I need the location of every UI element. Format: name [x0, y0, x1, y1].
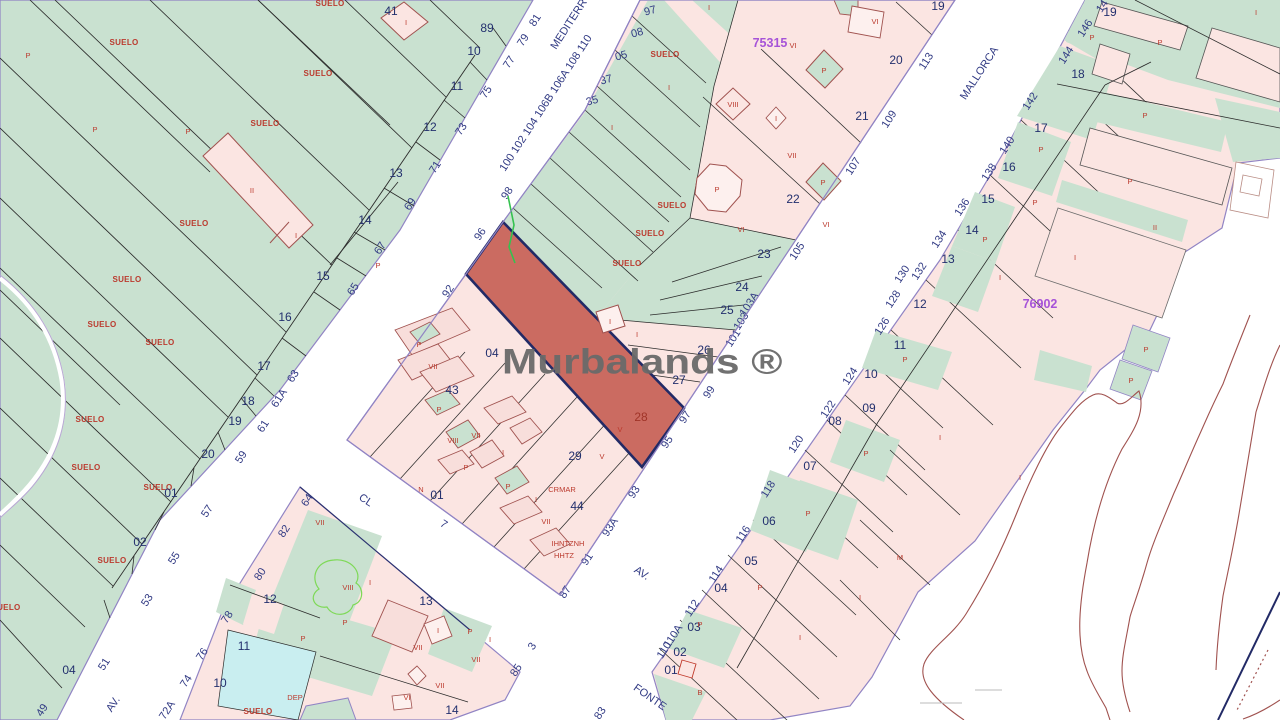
svg-text:I: I: [295, 231, 297, 240]
svg-text:05: 05: [744, 554, 758, 568]
svg-text:19: 19: [228, 414, 242, 428]
svg-text:75315: 75315: [753, 36, 788, 50]
svg-text:P: P: [1143, 345, 1148, 354]
svg-text:01: 01: [664, 663, 678, 677]
svg-text:17: 17: [257, 359, 271, 373]
svg-text:12: 12: [913, 297, 927, 311]
svg-text:CRMAR: CRMAR: [548, 485, 576, 494]
svg-text:24: 24: [735, 280, 749, 294]
svg-text:VI: VI: [789, 41, 796, 50]
svg-text:P: P: [1157, 38, 1162, 47]
svg-text:01: 01: [430, 488, 444, 502]
svg-text:VII: VII: [787, 151, 796, 160]
svg-text:I: I: [939, 433, 941, 442]
svg-text:16: 16: [1002, 160, 1016, 174]
svg-text:17: 17: [1034, 121, 1048, 135]
svg-text:SUELO: SUELO: [87, 320, 116, 329]
svg-text:I: I: [668, 83, 670, 92]
svg-text:P: P: [467, 627, 472, 636]
svg-text:18: 18: [1071, 67, 1085, 81]
svg-text:VI: VI: [822, 220, 829, 229]
svg-text:04: 04: [485, 346, 499, 360]
svg-text:19: 19: [931, 0, 945, 13]
svg-text:V: V: [617, 425, 622, 434]
svg-text:P: P: [1089, 33, 1094, 42]
svg-text:P: P: [902, 355, 907, 364]
svg-text:I: I: [708, 3, 710, 12]
svg-text:I: I: [609, 317, 611, 326]
svg-text:15: 15: [316, 269, 330, 283]
svg-text:11: 11: [451, 79, 464, 93]
svg-text:P: P: [1032, 198, 1037, 207]
svg-text:20: 20: [201, 447, 215, 461]
svg-text:VII: VII: [315, 518, 324, 527]
svg-text:25: 25: [720, 303, 734, 317]
svg-text:18: 18: [241, 394, 255, 408]
svg-text:06: 06: [762, 514, 776, 528]
svg-text:VII: VII: [428, 362, 437, 371]
svg-text:SUELO: SUELO: [303, 69, 332, 78]
svg-text:SUELO: SUELO: [650, 50, 679, 59]
svg-text:16: 16: [278, 310, 292, 324]
svg-text:P: P: [982, 235, 987, 244]
svg-text:12: 12: [423, 120, 437, 134]
svg-text:I: I: [1074, 253, 1076, 262]
svg-text:SUELO: SUELO: [612, 259, 641, 268]
svg-text:P: P: [25, 51, 30, 60]
svg-text:14: 14: [965, 223, 979, 237]
svg-text:P: P: [805, 509, 810, 518]
svg-text:I: I: [369, 578, 371, 587]
svg-text:VIII: VIII: [727, 100, 738, 109]
svg-text:28: 28: [634, 410, 648, 424]
svg-text:12: 12: [263, 592, 277, 606]
svg-text:SUELO: SUELO: [97, 556, 126, 565]
svg-text:SUELO: SUELO: [75, 415, 104, 424]
svg-text:44: 44: [570, 499, 584, 513]
svg-text:I: I: [502, 448, 504, 457]
svg-text:04: 04: [62, 663, 76, 677]
svg-text:I: I: [437, 626, 439, 635]
svg-text:P: P: [820, 178, 825, 187]
svg-text:P: P: [757, 583, 762, 592]
svg-text:23: 23: [757, 247, 771, 261]
svg-text:VII: VII: [413, 643, 422, 652]
svg-text:11: 11: [894, 338, 907, 352]
svg-text:I: I: [611, 123, 613, 132]
svg-text:P: P: [300, 634, 305, 643]
svg-text:I: I: [999, 273, 1001, 282]
svg-text:P: P: [1038, 145, 1043, 154]
svg-text:B: B: [697, 688, 702, 697]
svg-text:29: 29: [568, 449, 582, 463]
svg-text:IHNTZNH: IHNTZNH: [552, 539, 585, 548]
svg-text:P: P: [1128, 376, 1133, 385]
svg-text:I: I: [799, 633, 801, 642]
svg-text:V: V: [599, 452, 604, 461]
svg-text:DEP: DEP: [287, 693, 302, 702]
svg-text:14: 14: [445, 703, 459, 717]
svg-text:I: I: [636, 330, 638, 339]
svg-text:SUELO: SUELO: [315, 0, 344, 8]
svg-text:01: 01: [164, 486, 178, 500]
svg-text:15: 15: [981, 192, 995, 206]
svg-text:P: P: [1142, 111, 1147, 120]
svg-text:02: 02: [673, 645, 687, 659]
svg-text:SUELO: SUELO: [71, 463, 100, 472]
svg-text:10: 10: [213, 676, 227, 690]
svg-text:10: 10: [467, 44, 481, 58]
svg-text:I: I: [1255, 8, 1257, 17]
svg-text:P: P: [185, 127, 190, 136]
svg-text:21: 21: [855, 109, 869, 123]
svg-text:P: P: [821, 66, 826, 75]
svg-text:SUELO: SUELO: [635, 229, 664, 238]
svg-text:SUELO: SUELO: [112, 275, 141, 284]
svg-text:VIII: VIII: [342, 583, 353, 592]
svg-text:P: P: [342, 618, 347, 627]
svg-text:13: 13: [941, 252, 955, 266]
svg-text:I: I: [1019, 473, 1021, 482]
svg-text:I: I: [859, 593, 861, 602]
svg-text:HHTZ: HHTZ: [554, 551, 574, 560]
svg-text:I: I: [489, 635, 491, 644]
svg-text:P: P: [863, 449, 868, 458]
svg-text:41: 41: [384, 4, 398, 18]
svg-text:11: 11: [238, 639, 251, 653]
svg-text:VIII: VIII: [447, 436, 458, 445]
svg-text:SUELO: SUELO: [0, 603, 21, 612]
svg-text:P: P: [714, 185, 719, 194]
svg-text:II: II: [1153, 223, 1157, 232]
svg-text:P: P: [697, 620, 702, 629]
svg-text:I: I: [405, 18, 407, 27]
svg-text:09: 09: [862, 401, 876, 415]
svg-text:14: 14: [358, 213, 372, 227]
svg-text:43: 43: [445, 383, 459, 397]
svg-text:SUELO: SUELO: [109, 38, 138, 47]
svg-text:VII: VII: [471, 431, 480, 440]
svg-text:SUELO: SUELO: [657, 201, 686, 210]
svg-text:20: 20: [889, 53, 903, 67]
svg-text:SUELO: SUELO: [243, 707, 272, 716]
svg-text:13: 13: [389, 166, 403, 180]
svg-text:P: P: [436, 405, 441, 414]
svg-text:76902: 76902: [1023, 297, 1058, 311]
svg-text:22: 22: [786, 192, 800, 206]
svg-text:89: 89: [480, 21, 494, 35]
svg-text:P: P: [505, 482, 510, 491]
svg-text:M: M: [897, 553, 903, 562]
svg-text:I: I: [535, 495, 537, 504]
svg-text:SUELO: SUELO: [145, 338, 174, 347]
svg-text:P: P: [92, 125, 97, 134]
svg-text:VI: VI: [871, 17, 878, 26]
svg-text:10: 10: [864, 367, 878, 381]
svg-text:02: 02: [133, 535, 147, 549]
svg-text:13: 13: [419, 594, 433, 608]
svg-text:P: P: [1127, 177, 1132, 186]
svg-text:Murbalands ®: Murbalands ®: [502, 343, 783, 382]
svg-text:SUELO: SUELO: [179, 219, 208, 228]
svg-text:VI: VI: [403, 693, 410, 702]
svg-text:P: P: [463, 463, 468, 472]
svg-text:VI: VI: [737, 225, 744, 234]
svg-text:I: I: [775, 114, 777, 123]
svg-text:VII: VII: [541, 517, 550, 526]
svg-text:VII: VII: [435, 681, 444, 690]
svg-text:VII: VII: [471, 655, 480, 664]
svg-text:SUELO: SUELO: [250, 119, 279, 128]
svg-text:P: P: [375, 261, 380, 270]
svg-text:II: II: [250, 186, 254, 195]
svg-text:07: 07: [803, 459, 817, 473]
